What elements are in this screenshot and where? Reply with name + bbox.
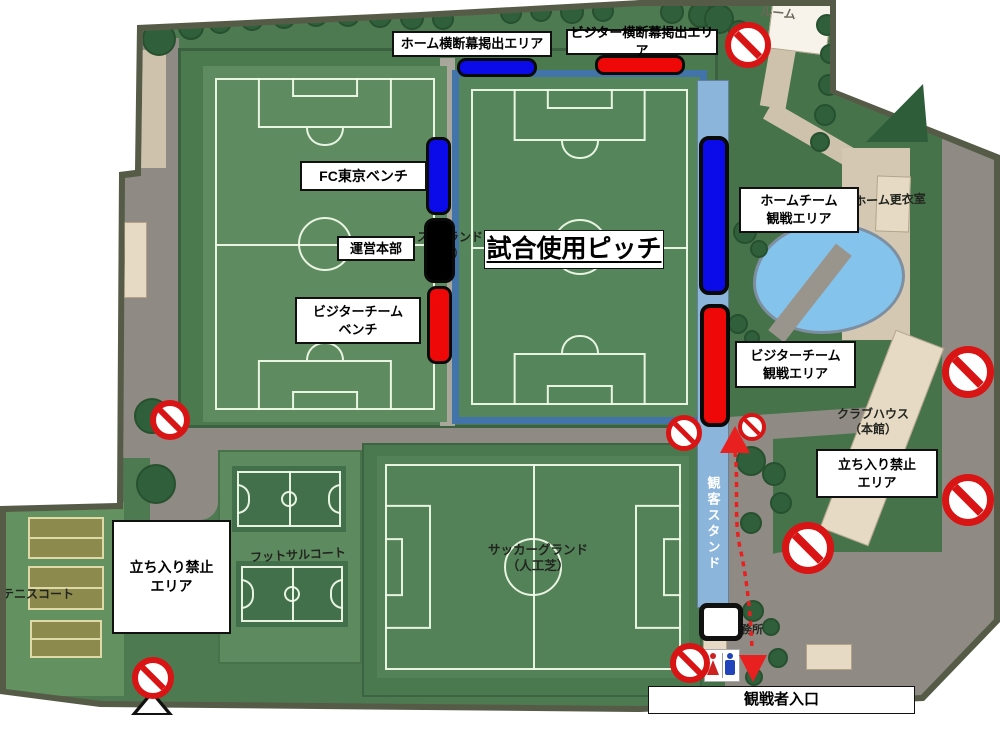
tree-icon bbox=[728, 314, 748, 334]
home-spectator-area-label: ホームチーム 観戦エリア bbox=[739, 187, 859, 233]
no-entry-icon bbox=[150, 400, 190, 440]
home-banner-area-label: ホーム横断幕掲出エリア bbox=[392, 31, 552, 57]
building bbox=[124, 222, 147, 298]
tree-icon bbox=[368, 4, 392, 28]
soccer-ground-label: サッカーグランド （人工芝） bbox=[468, 543, 608, 574]
tree-icon bbox=[592, 0, 614, 22]
reception-box bbox=[699, 603, 743, 641]
no-entry-icon bbox=[132, 657, 174, 699]
tree-icon bbox=[742, 600, 764, 622]
tennis-line bbox=[32, 638, 100, 640]
no-entry-icon bbox=[670, 643, 710, 683]
tree-icon bbox=[816, 14, 838, 36]
tree-icon bbox=[304, 3, 328, 27]
tree-icon bbox=[208, 10, 232, 34]
tree-icon bbox=[336, 3, 360, 27]
no-entry-icon bbox=[942, 346, 994, 398]
futsal-court bbox=[232, 466, 346, 532]
tree-icon bbox=[762, 462, 786, 486]
no-entry-icon bbox=[725, 22, 771, 68]
tree-icon bbox=[136, 464, 176, 504]
tree-icon bbox=[745, 668, 763, 686]
tree-icon bbox=[142, 22, 176, 56]
home-locker-room-label: ホーム更衣室 bbox=[848, 192, 932, 210]
no-entry-area-right-label: 立ち入り禁止 エリア bbox=[816, 449, 938, 498]
fc-tokyo-bench-label: FC東京ベンチ bbox=[300, 161, 427, 191]
divider bbox=[722, 653, 723, 678]
visitor-bench-label: ビジターチーム ベンチ bbox=[295, 297, 421, 344]
tree-icon bbox=[814, 104, 836, 126]
home-banner-bar bbox=[457, 58, 537, 77]
tree-icon bbox=[818, 74, 840, 96]
visitor-spectator-bar bbox=[700, 304, 730, 427]
facility-map: 観客スタンド ス ランド （ 芝） サッカーグランド （人工芝） フットサルコー… bbox=[0, 0, 1000, 751]
tree-icon bbox=[820, 44, 840, 64]
visitor-spectator-area-label: ビジターチーム 観戦エリア bbox=[735, 341, 856, 388]
tree-icon bbox=[660, 0, 684, 24]
home-bench-bar bbox=[426, 137, 451, 215]
male-figure-icon bbox=[724, 652, 737, 679]
operations-hq-label: 運営本部 bbox=[337, 236, 415, 261]
tree-icon bbox=[178, 14, 204, 40]
match-pitch-label: 試合使用ピッチ bbox=[484, 230, 664, 269]
tree-icon bbox=[240, 7, 264, 31]
tree-icon bbox=[500, 2, 522, 24]
spectator-entrance-label: 観戦者入口 bbox=[648, 686, 915, 714]
tennis-line bbox=[30, 537, 102, 539]
tree-icon bbox=[740, 512, 762, 534]
tree-icon bbox=[810, 132, 830, 152]
tree-icon bbox=[768, 648, 788, 668]
tree-icon bbox=[400, 6, 424, 30]
tree-icon bbox=[560, 0, 584, 24]
tree-icon bbox=[770, 492, 792, 514]
building bbox=[806, 644, 852, 670]
visitor-bench-bar bbox=[427, 286, 452, 364]
no-entry-icon bbox=[666, 415, 702, 451]
visitor-banner-area-label: ビジター横断幕掲出エリア bbox=[566, 29, 718, 55]
tennis-court-label: テニスコート bbox=[0, 587, 76, 602]
tree-icon bbox=[272, 5, 296, 29]
clubhouse-label: クラブハウス （本館） bbox=[828, 407, 918, 437]
home-spectator-bar bbox=[699, 136, 729, 295]
futsal-court bbox=[236, 561, 348, 627]
no-entry-icon bbox=[782, 522, 834, 574]
spectator-stand-label: 観客スタンド bbox=[699, 448, 727, 600]
tree-icon bbox=[530, 0, 552, 22]
no-entry-icon bbox=[738, 413, 766, 441]
parking-area bbox=[745, 552, 1000, 708]
operations-bar bbox=[424, 218, 455, 283]
path bbox=[140, 50, 166, 168]
tree-icon bbox=[750, 240, 768, 258]
no-entry-area-left-label: 立ち入り禁止 エリア bbox=[112, 520, 231, 634]
tree-icon bbox=[432, 8, 454, 30]
no-entry-icon bbox=[942, 474, 994, 526]
